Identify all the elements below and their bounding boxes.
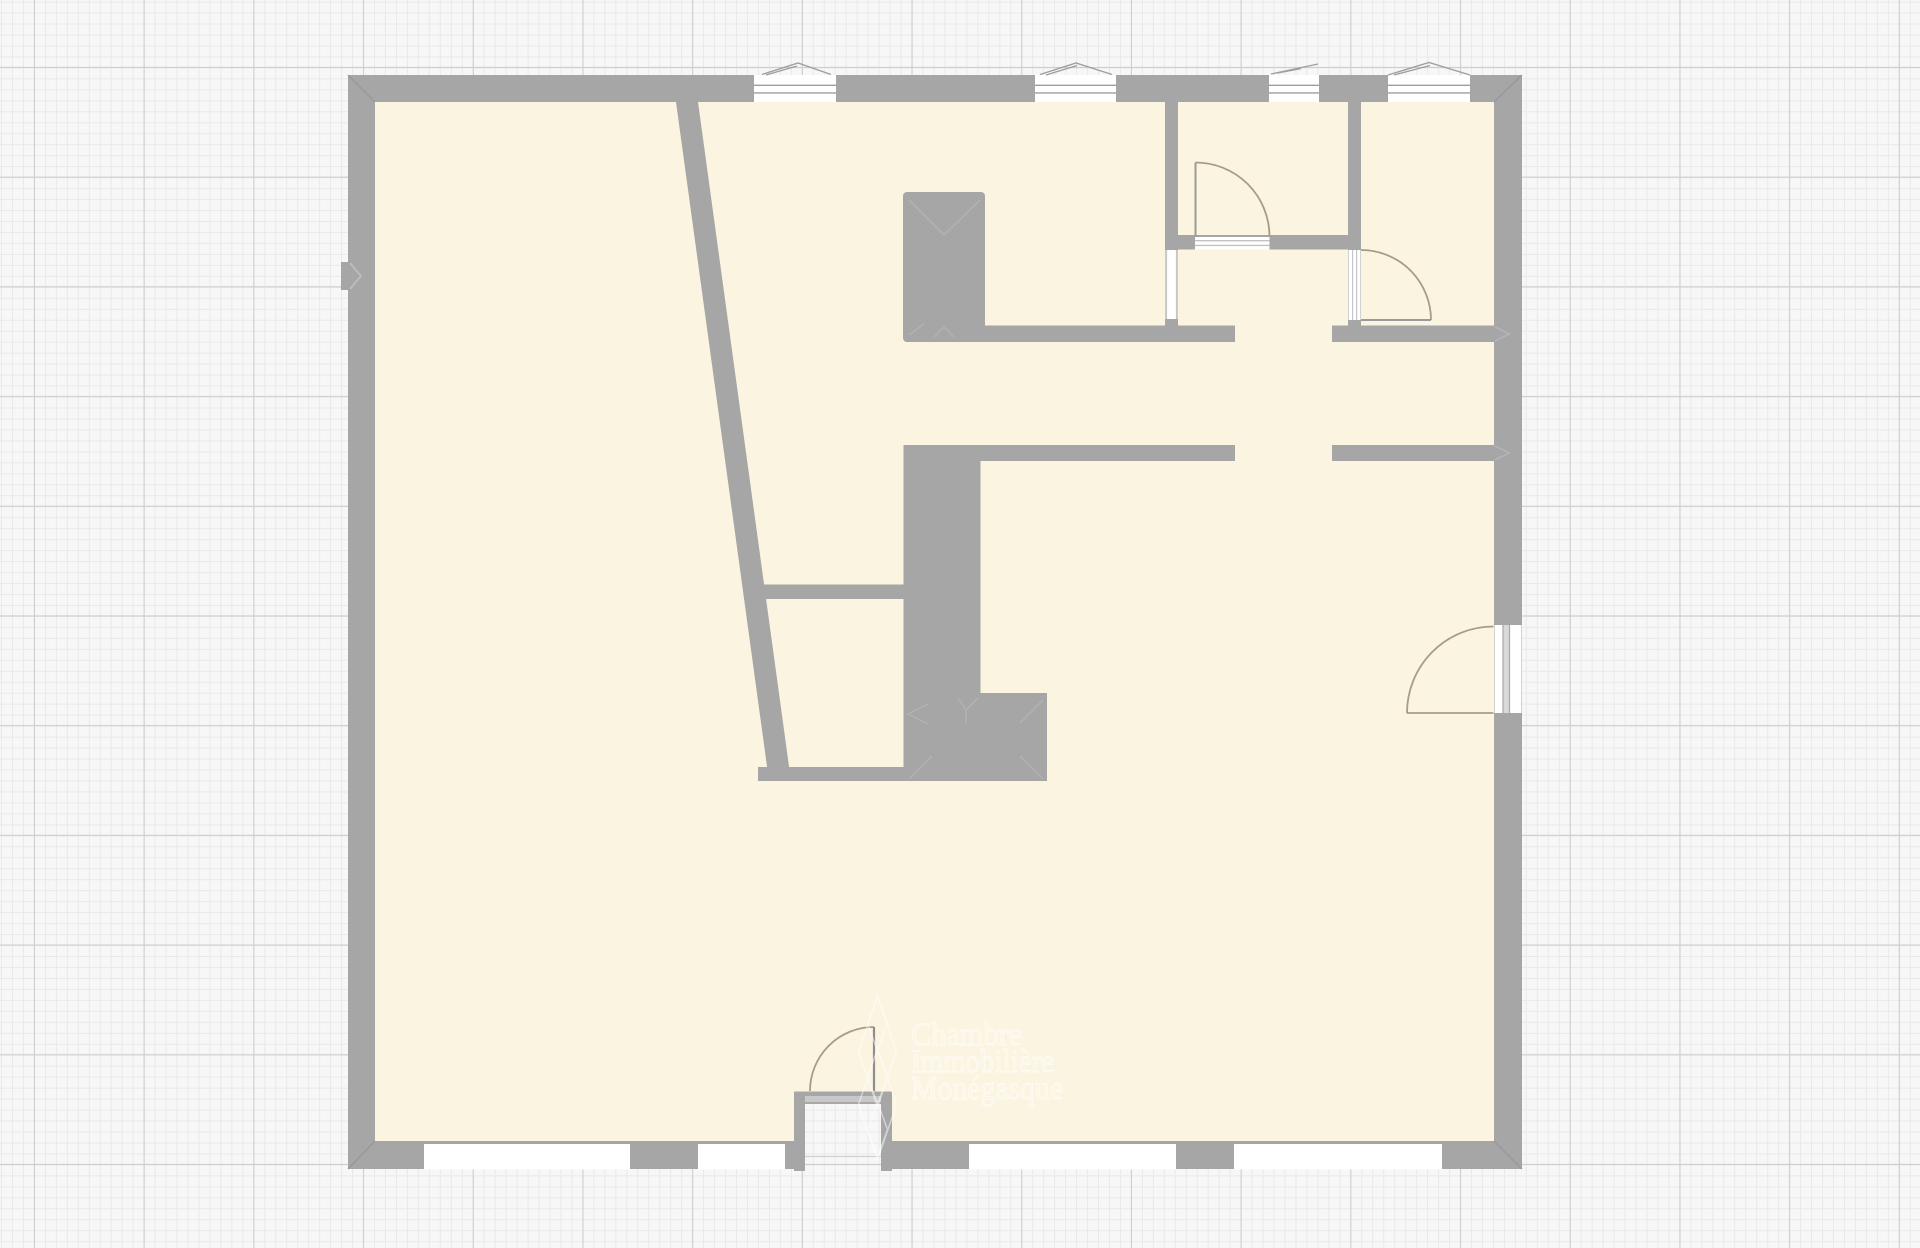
svg-text:Monégasque: Monégasque xyxy=(911,1071,1063,1107)
